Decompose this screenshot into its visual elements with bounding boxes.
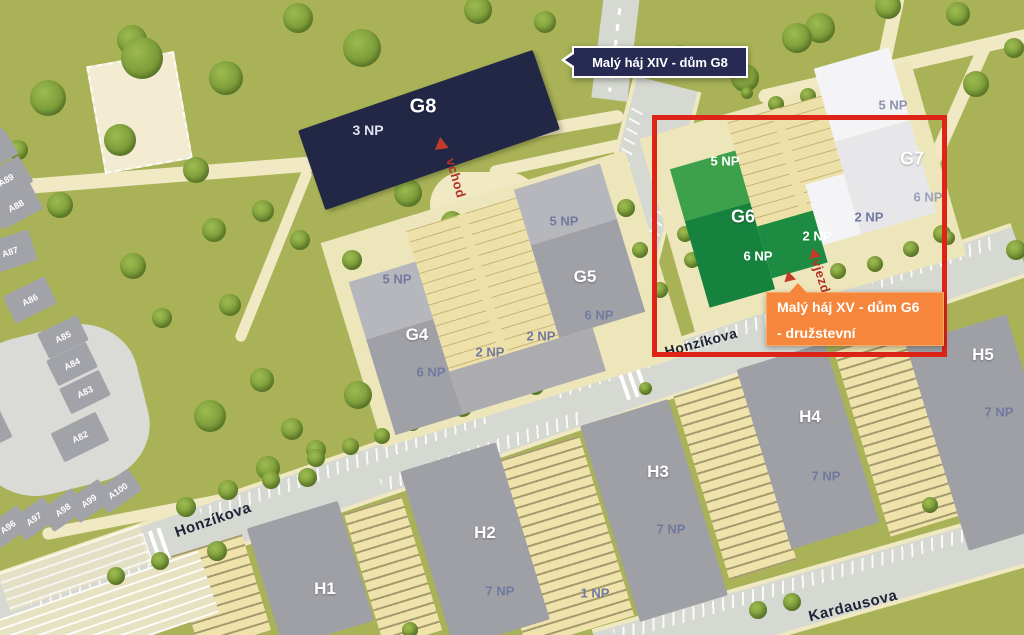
label-h3-name: H3 — [647, 462, 669, 482]
tree-icon — [30, 80, 66, 116]
tree-icon — [922, 497, 938, 513]
label-g5-name: G5 — [574, 267, 597, 287]
tree-icon — [783, 593, 801, 611]
tree-icon — [307, 449, 325, 467]
tree-icon — [290, 230, 310, 250]
tree-icon — [782, 23, 812, 53]
label-h1-name: H1 — [314, 579, 336, 599]
label-g5-np-main: 6 NP — [585, 308, 614, 323]
tooltip-g6[interactable]: Malý háj XV - dům G6 - družstevní — [766, 292, 944, 346]
tree-icon — [152, 308, 172, 328]
tree-icon — [151, 552, 169, 570]
tree-icon — [963, 71, 989, 97]
label-h2-np: 7 NP — [486, 584, 515, 599]
tooltip-arrow-left-icon — [565, 54, 574, 66]
tree-icon — [1004, 38, 1024, 58]
park-path — [234, 168, 314, 344]
label-h4-np: 7 NP — [812, 469, 841, 484]
label-g8-np: 3 NP — [352, 122, 383, 138]
label-h3-np: 7 NP — [657, 522, 686, 537]
tree-icon — [219, 294, 241, 316]
tree-icon — [207, 541, 227, 561]
tree-icon — [639, 382, 652, 395]
label-g4-np-main: 6 NP — [417, 365, 446, 380]
tree-icon — [281, 418, 303, 440]
tree-icon — [344, 381, 372, 409]
site-map: A90A89A88A87A86A85A84A83A82A72A96A97A98A… — [0, 0, 1024, 635]
label-g8-name: G8 — [410, 96, 437, 119]
tree-icon — [120, 253, 146, 279]
entrance-arrow-icon — [433, 136, 449, 150]
label-g5-np-top: 5 NP — [550, 214, 579, 229]
label-g5-np-low: 2 NP — [527, 329, 556, 344]
tree-icon — [183, 157, 209, 183]
tree-icon — [343, 29, 381, 67]
tree-icon — [749, 601, 767, 619]
tooltip-g6-line2: - družstevní — [777, 320, 943, 346]
label-g7-np-top: 5 NP — [879, 98, 908, 113]
label-h5-name: H5 — [972, 345, 994, 365]
tooltip-arrow-up-icon — [789, 283, 807, 293]
tooltip-g6-line1: Malý háj XV - dům G6 — [777, 294, 943, 320]
tooltip-g8-text: Malý háj XIV - dům G8 — [592, 55, 728, 70]
tree-icon — [262, 471, 280, 489]
label-g4-np-top: 5 NP — [383, 272, 412, 287]
tree-icon — [252, 200, 274, 222]
tree-icon — [47, 192, 73, 218]
tree-icon — [107, 567, 125, 585]
label-h5-np: 7 NP — [985, 405, 1014, 420]
tree-icon — [464, 0, 492, 24]
tree-icon — [202, 218, 226, 242]
tree-icon — [121, 37, 163, 79]
tree-icon — [218, 480, 238, 500]
tree-icon — [298, 468, 317, 487]
tree-icon — [283, 3, 313, 33]
tree-icon — [342, 438, 359, 455]
tree-icon — [104, 124, 136, 156]
label-g4-name: G4 — [406, 325, 429, 345]
tree-icon — [176, 497, 196, 517]
label-h2-name: H2 — [474, 523, 496, 543]
label-garage-h23-np: 1 NP — [581, 586, 610, 601]
tree-icon — [946, 2, 970, 26]
tree-icon — [209, 61, 243, 95]
tooltip-g8[interactable]: Malý háj XIV - dům G8 — [572, 46, 748, 78]
tree-icon — [741, 87, 753, 99]
label-g4-np-low: 2 NP — [476, 345, 505, 360]
tree-icon — [194, 400, 226, 432]
label-h4-name: H4 — [799, 407, 821, 427]
tree-icon — [402, 622, 418, 635]
tree-icon — [1006, 240, 1024, 260]
tree-icon — [534, 11, 556, 33]
tree-icon — [250, 368, 274, 392]
